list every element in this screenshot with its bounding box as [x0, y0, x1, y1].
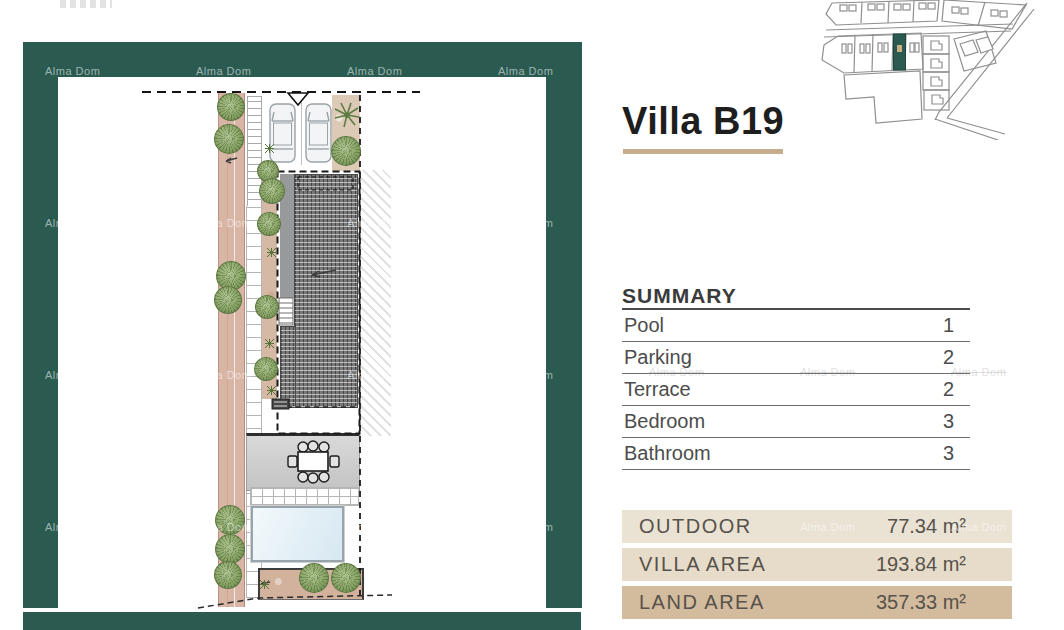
- tree-icon: [255, 295, 279, 319]
- area-label: VILLA AREA: [622, 553, 766, 576]
- tree-icon: [214, 561, 242, 589]
- area-row: LAND AREA357.33 m²: [622, 586, 1012, 619]
- tree-icon: [254, 357, 278, 381]
- summary-label: Bathroom: [622, 442, 711, 465]
- building-roof-hatch-lower: [280, 326, 296, 408]
- plan-frame-top: [23, 42, 581, 77]
- map-highlight: [894, 34, 906, 70]
- summary-row: Parking2: [622, 342, 970, 374]
- area-row: OUTDOOR77.34 m²: [622, 510, 1012, 543]
- plant-icon: [265, 144, 274, 153]
- map-highlight-dot: [897, 45, 902, 52]
- plan-frame-right: [546, 42, 582, 608]
- plant-icon: [265, 339, 274, 348]
- tree-icon: [217, 93, 245, 121]
- tree-icon: [331, 563, 361, 593]
- location-map: [813, 0, 1048, 140]
- cropped-logo: [60, 0, 112, 8]
- plant-icon: [260, 580, 269, 589]
- area-value: 357.33 m²: [876, 591, 1012, 614]
- area-label: OUTDOOR: [622, 515, 752, 538]
- summary-row: Bathroom3: [622, 438, 970, 470]
- car-icon: [306, 104, 331, 162]
- neighbor-plot-hatch: [360, 170, 391, 436]
- building-roof-hatch: [294, 174, 358, 408]
- summary-label: Pool: [622, 314, 664, 337]
- tree-icon: [257, 212, 281, 236]
- pool: [251, 506, 344, 562]
- car-icon: [270, 104, 295, 162]
- plan-frame-bottom: [23, 612, 581, 630]
- area-table: OUTDOOR77.34 m²VILLA AREA193.84 m²LAND A…: [622, 510, 1012, 619]
- summary-row: Pool1: [622, 310, 970, 342]
- plant-icon: [267, 248, 276, 257]
- area-label: LAND AREA: [622, 591, 765, 614]
- title-underline: [623, 149, 783, 154]
- summary-row: Terrace2: [622, 374, 970, 406]
- summary-value: 1: [943, 314, 970, 337]
- tree-icon: [215, 534, 245, 564]
- paved-grid: [250, 487, 359, 506]
- tree-icon: [214, 286, 242, 314]
- page: Villa B19 SUMMARY Pool1Parking2Terrace2B…: [0, 0, 1064, 630]
- plan-frame-left: [23, 42, 58, 608]
- page-title: Villa B19: [622, 100, 784, 143]
- summary-row: Bedroom3: [622, 406, 970, 438]
- summary-table: Pool1Parking2Terrace2Bedroom3Bathroom3: [622, 308, 970, 470]
- area-value: 193.84 m²: [876, 553, 1012, 576]
- summary-value: 2: [943, 346, 970, 369]
- summary-heading: SUMMARY: [622, 284, 737, 308]
- summary-value: 2: [943, 378, 970, 401]
- summary-value: 3: [943, 442, 970, 465]
- summary-label: Parking: [622, 346, 692, 369]
- boundary-marker: [288, 93, 308, 105]
- tree-icon: [215, 505, 245, 535]
- tree-icon: [259, 178, 285, 204]
- summary-value: 3: [943, 410, 970, 433]
- tree-icon: [331, 136, 361, 166]
- summary-label: Bedroom: [622, 410, 705, 433]
- area-value: 77.34 m²: [887, 515, 1012, 538]
- tree-icon: [299, 563, 329, 593]
- summary-label: Terrace: [622, 378, 691, 401]
- plant-icon: [267, 386, 276, 395]
- tree-icon: [214, 124, 244, 154]
- watermark: Alma Dom: [347, 521, 402, 533]
- area-row: VILLA AREA193.84 m²: [622, 548, 1012, 581]
- terrace: [246, 433, 360, 491]
- parking-divider-line: [301, 95, 302, 165]
